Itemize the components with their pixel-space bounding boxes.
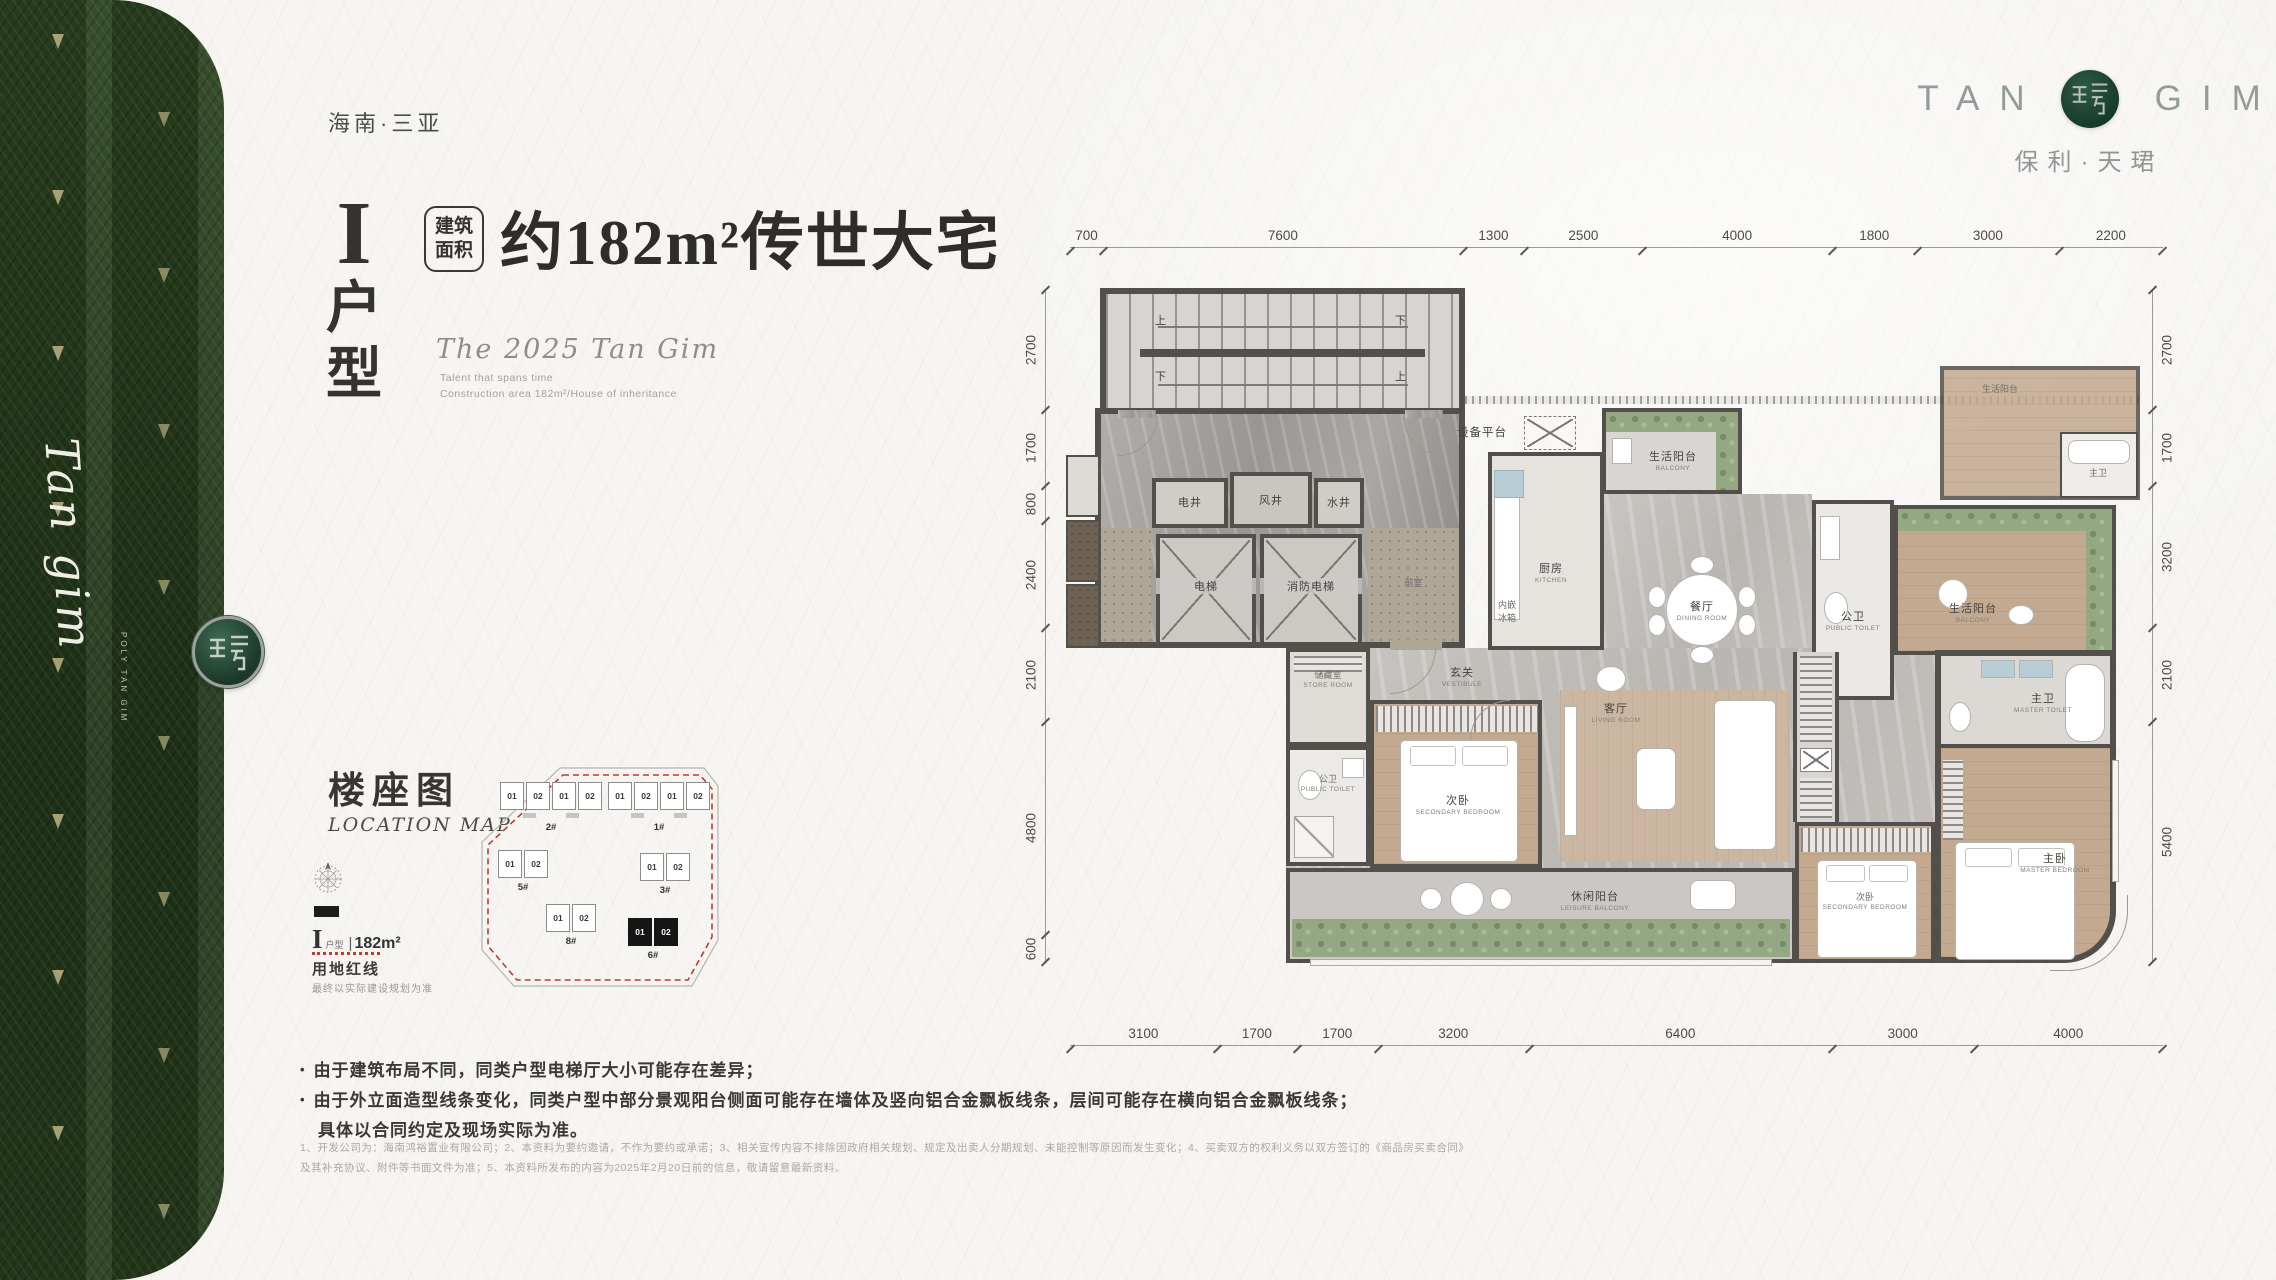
closet xyxy=(1943,760,1963,840)
label-shaft-water: 水井 xyxy=(1314,494,1364,510)
bathtub xyxy=(2068,440,2130,464)
label-secondary-bedroom-bottom: 次卧SECONDARY BEDROOM xyxy=(1800,890,1930,911)
brand-seal-medallion xyxy=(192,616,264,688)
window-rail xyxy=(1310,959,1772,966)
dim-segment: 3200 xyxy=(1378,1022,1529,1046)
dim-segment: 1800 xyxy=(1832,224,1917,248)
unit-roman-numeral: I xyxy=(318,192,390,276)
dimensions-bottom: 3100170017003200640030004000 xyxy=(1070,1022,2163,1046)
map-building-1: 010201021# xyxy=(608,782,710,833)
stair-arrow-lower xyxy=(1158,384,1408,386)
planter-top xyxy=(1898,509,2112,531)
label-front-hall: 前室 xyxy=(1368,576,1459,589)
coffee-table xyxy=(1636,748,1676,810)
window xyxy=(2112,760,2119,882)
master-corridor xyxy=(1793,652,1839,822)
poster-canvas: Tan gim POLY TAN GIM 海南·三亚 I 户 型 建筑 面积 约… xyxy=(0,0,2276,1280)
unit-char-xing: 型 xyxy=(318,342,390,408)
dim-segment: 2500 xyxy=(1524,224,1642,248)
legend-divider: | xyxy=(349,935,353,952)
note-bullet-2-cont: 具体以合同约定及现场实际为准。 xyxy=(318,1116,588,1141)
area-tag-line1: 建筑 xyxy=(435,215,473,239)
logo-wordmark: TAN GIM xyxy=(1944,70,2234,128)
map-building-5: 01025# xyxy=(498,850,548,893)
dim-segment: 2100 xyxy=(2152,628,2182,721)
note-bullet-1: 由于建筑布局不同，同类户型电梯厅大小可能存在差异； xyxy=(300,1056,764,1081)
stair-label-down-2: 下 xyxy=(1146,368,1176,384)
area-tag-chip: 建筑 面积 xyxy=(424,206,484,272)
unit-type-title: I 户 型 xyxy=(318,192,390,408)
label-equipment-platform: 设备平台 xyxy=(1442,424,1522,440)
label-kitchen: 厨房KITCHEN xyxy=(1506,560,1596,584)
wardrobe xyxy=(1376,706,1538,732)
brand-logo: TAN GIM 保利·天珺 xyxy=(1944,70,2234,177)
dim-segment: 1700 xyxy=(2152,410,2182,486)
label-elevator: 电梯 xyxy=(1156,578,1256,594)
note-bullet-2: 由于外立面造型线条变化，同类户型中部分景观阳台侧面可能存在墙体及竖向铝合金飘板线… xyxy=(300,1086,1358,1111)
dim-segment: 1300 xyxy=(1463,224,1525,248)
dim-segment: 1700 xyxy=(1016,410,1046,486)
label-public-toilet-top: 公卫PUBLIC TOILET xyxy=(1814,608,1892,632)
dim-segment: 2700 xyxy=(2152,290,2182,410)
dark-cell-1 xyxy=(1066,520,1100,582)
public-toilet-left xyxy=(1286,746,1370,866)
map-building-6: 01026# xyxy=(628,918,678,961)
sofa xyxy=(1714,700,1776,850)
label-secondary-bedroom-left: 次卧SECONDARY BEDROOM xyxy=(1388,792,1528,816)
redline-note: 最终以实际建设规划为准 xyxy=(312,980,433,995)
wardrobe xyxy=(1801,828,1931,852)
label-balcony-top: 生活阳台BALCONY xyxy=(1618,448,1728,472)
dining-chair xyxy=(1690,556,1714,574)
dim-segment: 3000 xyxy=(1832,1022,1974,1046)
tv-cabinet xyxy=(1564,706,1577,836)
map-building-8: 01028# xyxy=(546,904,596,947)
side-closet xyxy=(1066,455,1100,517)
jun-glyph-icon xyxy=(207,631,251,675)
dim-segment: 3000 xyxy=(1917,224,2059,248)
toilet xyxy=(1949,702,1971,732)
wardrobe xyxy=(1800,656,1832,742)
sink xyxy=(2019,660,2053,678)
fine-print-2: 及其补充协议、附件等书面文件为准；5、本资料所发布的内容为2025年2月20日前… xyxy=(300,1160,1820,1175)
redline-sample xyxy=(312,952,380,955)
fine-print-1: 1、开发公司为：海南鸿裕置业有限公司；2、本资料为要约邀请，不作为要约或承诺；3… xyxy=(300,1140,1820,1155)
legend-unit-swatch xyxy=(314,906,339,917)
store-room xyxy=(1286,648,1370,746)
logo-chinese: 保利·天珺 xyxy=(1944,142,2234,177)
lounge-chair xyxy=(1690,880,1736,910)
cabinet xyxy=(1800,748,1832,772)
label-dining: 餐厅DINING ROOM xyxy=(1662,598,1742,622)
stair-label-up-2: 上 xyxy=(1386,368,1416,384)
vanity xyxy=(1820,516,1840,560)
label-public-toilet-left: 公卫PUBLIC TOILET xyxy=(1286,772,1370,793)
stair-label-down-1: 下 xyxy=(1386,312,1416,328)
equipment-platform-box xyxy=(1524,416,1576,450)
dim-segment: 600 xyxy=(1016,935,1046,962)
subtitle-en: The 2025 Tan Gim xyxy=(436,334,719,365)
dim-segment: 800 xyxy=(1016,486,1046,522)
legend-area: 182m² xyxy=(354,935,400,952)
compass-icon xyxy=(308,858,348,898)
area-tag-line2: 面积 xyxy=(435,239,473,263)
label-fridge: 内嵌冰箱 xyxy=(1492,598,1522,624)
dim-segment: 3200 xyxy=(2152,486,2182,628)
leaf-decor-strip: Tan gim POLY TAN GIM xyxy=(0,0,224,1280)
stair-landing-divider xyxy=(1140,349,1425,357)
logo-seal-icon xyxy=(2061,70,2119,128)
armchair xyxy=(1596,666,1626,692)
dim-segment: 7600 xyxy=(1103,224,1463,248)
dining-chair xyxy=(1690,646,1714,664)
location-map: 010201022#010201021#01025#01023#01028#01… xyxy=(468,754,726,1004)
sink xyxy=(1981,660,2015,678)
label-master-bedroom: 主卧MASTER BEDROOM xyxy=(2000,850,2110,874)
dim-segment: 4000 xyxy=(1974,1022,2163,1046)
subtitle-line1: Talent that spans time xyxy=(440,372,553,384)
planter-bottom xyxy=(1292,919,1790,957)
patio-chair xyxy=(1420,888,1442,910)
map-building-2: 010201022# xyxy=(500,782,602,833)
label-master-toilet: 主卫MASTER TOILET xyxy=(1988,690,2098,714)
legend-unit-area: I户型|182m² xyxy=(312,924,401,955)
subtitle-line2: Construction area 182m²/House of inherit… xyxy=(440,388,677,400)
stair-label-up-1: 上 xyxy=(1146,312,1176,328)
legend-roman: I xyxy=(312,924,323,954)
dimensions-right: 27001700320021005400 xyxy=(2152,290,2182,962)
label-balcony-right: 生活阳台BALCONY xyxy=(1918,600,2028,624)
map-building-3: 01023# xyxy=(640,853,690,896)
map-buildings: 010201022#010201021#01025#01023#01028#01… xyxy=(468,754,726,1004)
curved-rail xyxy=(2050,895,2128,971)
label-neighbor-toilet: 主卫 xyxy=(2068,466,2128,479)
patio-table xyxy=(1450,882,1484,916)
label-store: 储藏室STORE ROOM xyxy=(1286,668,1370,689)
neighbor-bathroom xyxy=(2060,432,2138,498)
dim-segment: 2200 xyxy=(2059,224,2163,248)
front-hall-left xyxy=(1101,528,1151,642)
shower xyxy=(1294,816,1334,858)
dim-segment: 2100 xyxy=(1016,628,1046,721)
secondary-bedroom-left xyxy=(1370,700,1542,868)
dimensions-top: 7007600130025004000180030002200 xyxy=(1070,224,2163,248)
dim-segment: 3100 xyxy=(1070,1022,1217,1046)
dim-segment: 5400 xyxy=(2152,722,2182,962)
label-shaft-electrical: 电井 xyxy=(1152,494,1228,510)
kitchen-sink xyxy=(1494,470,1524,498)
logo-tan: TAN xyxy=(1897,79,2044,119)
dim-segment: 2700 xyxy=(1016,290,1046,410)
city-tag: 海南·三亚 xyxy=(328,106,443,138)
unit-char-hu: 户 xyxy=(318,276,390,342)
legend-unit-type: 户型 xyxy=(326,940,344,950)
redline-label: 用地红线 xyxy=(312,958,380,979)
dark-cell-2 xyxy=(1066,584,1100,648)
stair-arrow-upper xyxy=(1158,326,1408,328)
dim-segment: 4000 xyxy=(1642,224,1831,248)
label-neighbor-balcony: 生活阳台 xyxy=(1960,382,2040,395)
planter-right xyxy=(2086,509,2112,651)
leisure-balcony xyxy=(1286,868,1796,963)
label-leisure-balcony: 休闲阳台LEISURE BALCONY xyxy=(1530,888,1660,912)
dim-segment: 2400 xyxy=(1016,521,1046,628)
headline: 约182m²传世大宅 xyxy=(500,192,1001,283)
wardrobe xyxy=(1800,778,1832,818)
brand-script-caption: POLY TAN GIM xyxy=(119,632,128,723)
brand-script-signature: Tan gim xyxy=(34,436,103,654)
dim-segment: 700 xyxy=(1070,224,1103,248)
map-title: 楼座图 xyxy=(328,760,460,814)
logo-gim: GIM xyxy=(2135,79,2276,119)
dimensions-left: 27001700800240021004800600 xyxy=(1016,290,1046,962)
label-fire-elevator: 消防电梯 xyxy=(1260,578,1362,594)
patio-chair xyxy=(1490,888,1512,910)
dim-segment: 4800 xyxy=(1016,722,1046,936)
label-shaft-air: 风井 xyxy=(1230,492,1312,508)
balcony-right xyxy=(1894,505,2116,655)
label-living: 客厅LIVING ROOM xyxy=(1566,700,1666,724)
dim-segment: 6400 xyxy=(1529,1022,1832,1046)
dim-segment: 1700 xyxy=(1217,1022,1297,1046)
dim-segment: 1700 xyxy=(1297,1022,1377,1046)
